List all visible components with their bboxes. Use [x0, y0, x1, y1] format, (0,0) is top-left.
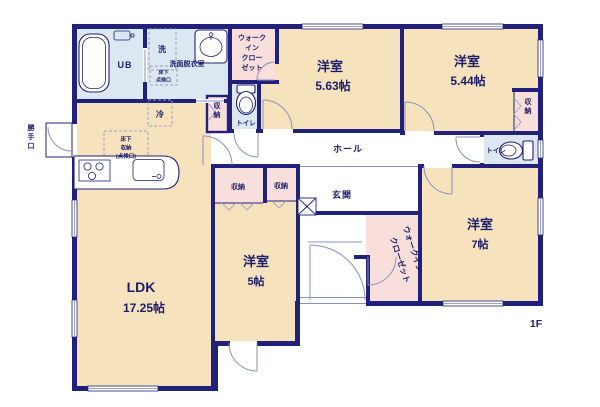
door-gap	[234, 129, 256, 133]
wall-segment	[275, 24, 279, 64]
window	[538, 198, 543, 235]
wall-segment	[228, 24, 232, 132]
room-ldk	[77, 103, 211, 386]
label-bedroom-north: 洋室	[317, 59, 343, 74]
label-bedroom-north-size: 5.63帖	[315, 78, 350, 93]
label-bedroom-south-size: 5帖	[247, 274, 264, 288]
room-bedroom-southeast	[422, 168, 538, 303]
label-floor: 1F	[530, 318, 543, 330]
label-closet-b: 収納	[274, 181, 288, 190]
window	[442, 24, 503, 29]
washbasin-icon	[195, 30, 227, 63]
kitchen-counter	[74, 156, 179, 189]
door-gap-back-door	[72, 124, 77, 157]
label-washroom: 洗面脱衣室	[170, 59, 205, 68]
back-door	[46, 123, 72, 157]
wall-segment	[418, 164, 422, 306]
window	[72, 200, 77, 237]
label-wic-north-4: ゼット	[242, 63, 263, 72]
wall-segment	[228, 80, 279, 84]
door-gap	[230, 341, 257, 346]
door-gap	[263, 129, 293, 133]
wall-segment	[400, 24, 404, 135]
window	[88, 386, 158, 391]
label-back-door: 勝手口	[28, 123, 36, 150]
label-underfloor-hatch-2: 点検口	[156, 77, 171, 84]
label-wic-north-3: クロー	[242, 53, 263, 62]
window	[443, 301, 503, 306]
label-bedroom-southeast-size: 7帖	[471, 237, 488, 251]
label-underfloor-storage-3: (点検口)	[116, 152, 136, 160]
label-hall: ホール	[333, 144, 363, 154]
label-toilet-north: トイレ	[236, 119, 256, 127]
floorplan-page: UB 洗面脱衣室 洗 冷 床下 点検口 床下 収納 (点検口) ウォーク イン …	[0, 0, 600, 407]
label-washer: 洗	[158, 44, 166, 54]
label-bedroom-southeast: 洋室	[467, 217, 493, 232]
wall-segment	[296, 164, 300, 305]
label-toilet-east: トイレ	[486, 147, 506, 155]
door-gap	[480, 137, 484, 163]
wall-segment	[354, 255, 368, 259]
wall-segment	[211, 164, 300, 168]
window	[72, 300, 77, 337]
label-bedroom-northeast-size: 5.44帖	[450, 73, 485, 88]
label-closet-a: 収納	[231, 182, 245, 191]
toilet-icon	[237, 85, 256, 115]
window	[538, 140, 543, 158]
label-bedroom-south: 洋室	[243, 254, 269, 269]
label-entrance: 玄関	[332, 189, 352, 200]
label-bedroom-northeast: 洋室	[454, 54, 480, 69]
floorplan-canvas: UB 洗面脱衣室 洗 冷 床下 点検口 床下 収納 (点検口) ウォーク イン …	[0, 0, 600, 407]
wall-segment	[257, 80, 261, 133]
label-underfloor-storage-2: 収納	[120, 144, 132, 152]
wall-segment	[295, 301, 300, 346]
window	[302, 24, 363, 29]
label-underfloor-storage-1: 床下	[120, 135, 132, 143]
pillar-box	[298, 198, 316, 215]
label-unit-bath: UB	[118, 60, 133, 70]
door-gap	[405, 131, 434, 135]
window	[538, 40, 543, 77]
wall-segment	[263, 164, 267, 203]
door-arc-exterior	[229, 343, 257, 371]
wall-segment	[211, 164, 215, 390]
label-wic-north-1: ウォーク	[238, 33, 266, 42]
bathtub-icon	[79, 34, 109, 92]
label-wic-north-2: イン	[245, 44, 259, 52]
label-underfloor-hatch-1: 床下	[158, 69, 168, 76]
label-ldk: LDK	[127, 279, 156, 295]
door-gap	[424, 164, 452, 168]
label-ldk-size: 17.25帖	[123, 300, 165, 315]
label-fridge: 冷	[156, 109, 164, 119]
wall-segment	[512, 88, 543, 92]
